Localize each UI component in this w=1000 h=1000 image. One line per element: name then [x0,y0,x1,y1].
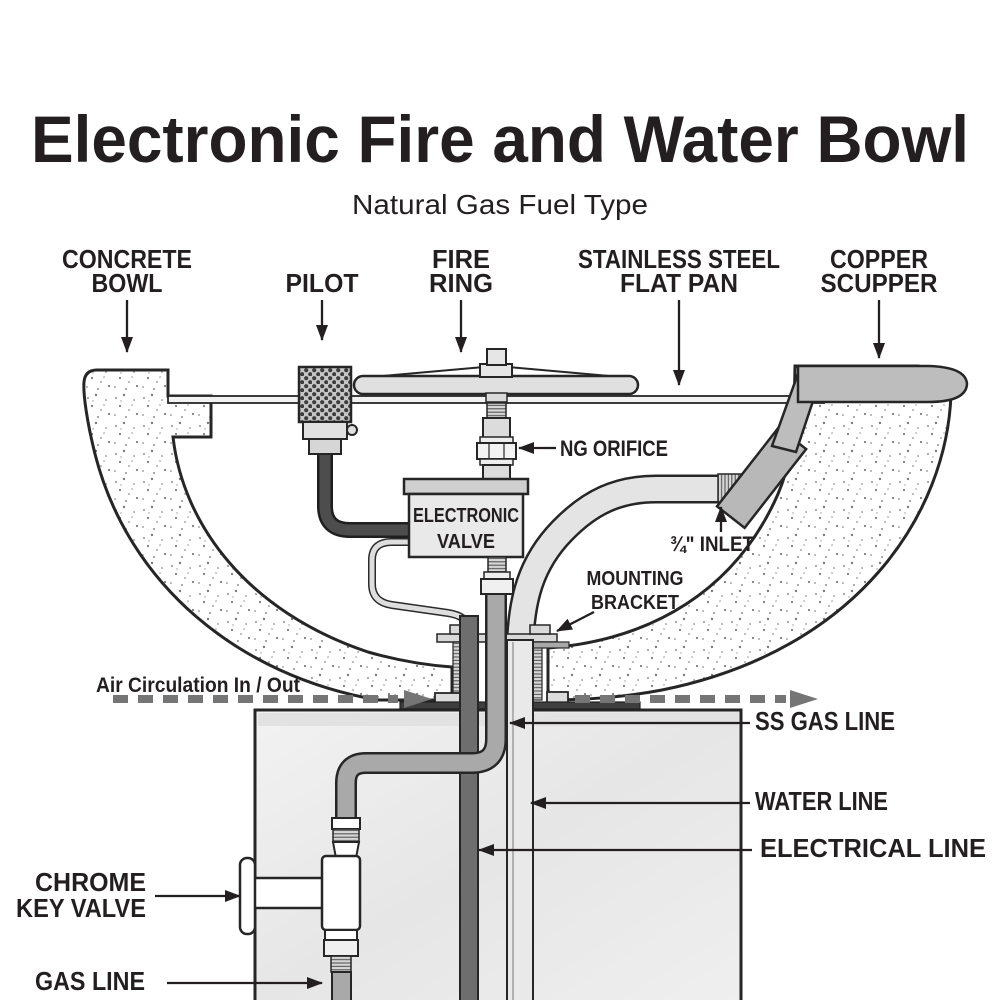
fire-ring [354,349,638,402]
valve-escutcheon [240,858,255,934]
threaded-rod-right [533,642,542,700]
bracket-nut-right [530,625,550,634]
callout-flat-pan-2: FLAT PAN [620,268,738,298]
pilot-tube [325,450,412,530]
electrical-conduit [460,616,478,1000]
air-circulation-label: Air Circulation In / Out [96,674,300,697]
callout-ss-gas-line: SS GAS LINE [755,706,895,736]
callout-inlet: ¾" INLET [670,533,754,556]
callout-mounting-bracket-1: MOUNTING [587,568,684,590]
valve-stem [250,878,324,908]
page-subtitle: Natural Gas Fuel Type [352,189,648,220]
callout-ng-orifice: NG ORIFICE [560,436,668,461]
pilot-assembly [299,367,357,454]
callout-mounting-bracket-2: BRACKET [591,592,679,614]
fire-water-bowl-diagram: ELECTRONIC VALVE Air Circulation In / Ou… [0,0,1000,1000]
diagram-page: ELECTRONIC VALVE Air Circulation In / Ou… [0,0,1000,1000]
valve-cap [404,479,528,494]
pilot-head [299,367,351,422]
electronic-valve-label-2: VALVE [437,531,495,553]
callout-fire-ring-2: RING [429,268,493,298]
pilot-tube-fill [325,450,412,530]
callout-gas-line: GAS LINE [35,966,145,996]
callout-chrome-key-valve-2: KEY VALVE [16,893,146,923]
callout-pilot: PILOT [286,268,359,298]
water-line-column [507,640,533,1000]
gas-line-pipe-bottom [332,972,351,1000]
callout-electrical-line: ELECTRICAL LINE [760,833,986,863]
ng-orifice-fitting [477,443,516,459]
valve-body [322,856,360,930]
copper-scupper-body [798,366,967,402]
center-gas-stack: ELECTRONIC VALVE [404,403,528,594]
electronic-valve-label-1: ELECTRONIC [413,505,519,527]
page-title: Electronic Fire and Water Bowl [31,102,969,176]
callout-concrete-bowl-2: BOWL [92,268,163,298]
callout-water-line: WATER LINE [755,786,888,816]
callout-copper-scupper-2: SCUPPER [821,268,938,298]
